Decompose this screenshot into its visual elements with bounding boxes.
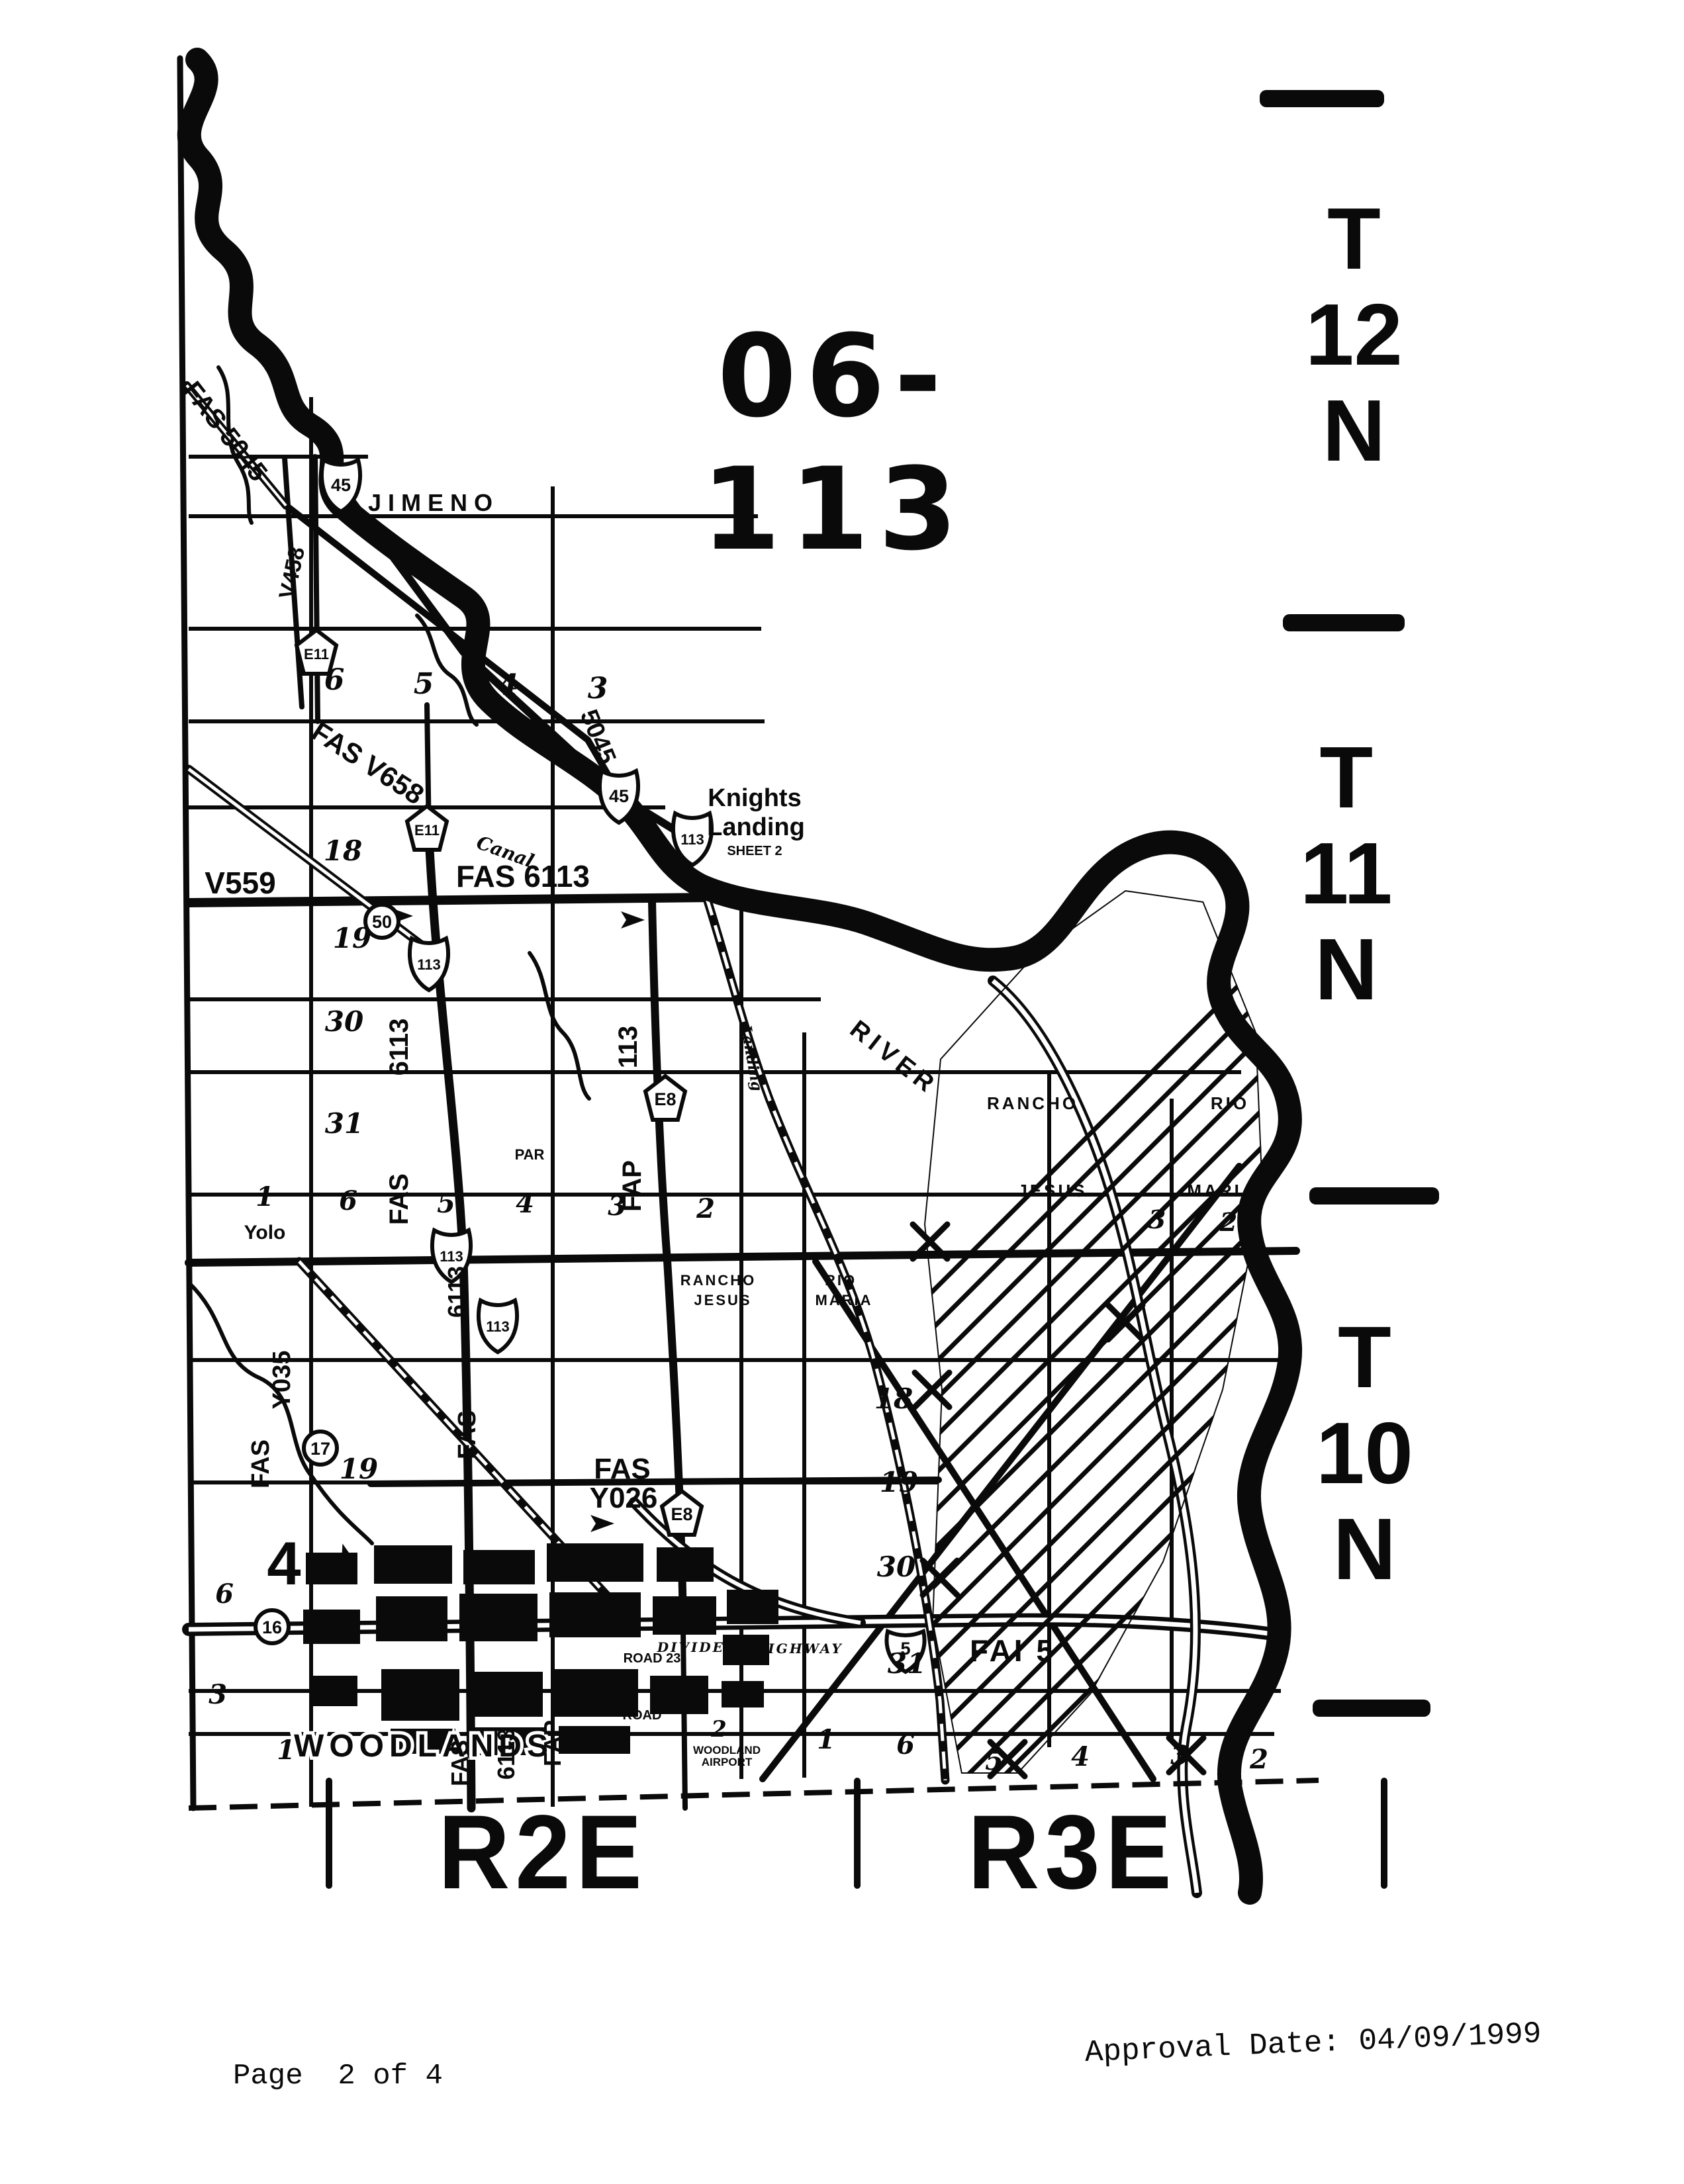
svg-text:113: 113 — [486, 1318, 510, 1335]
map-label: Yolo — [244, 1222, 286, 1244]
map-label: H6 — [755, 903, 770, 916]
map-label: FAS — [385, 1173, 414, 1225]
svg-text:E11: E11 — [414, 822, 440, 839]
map-label: 5 — [437, 1188, 455, 1219]
map-label: AIRPORT — [702, 1756, 753, 1768]
township-label-t11n: T 11 N — [1300, 729, 1393, 1018]
map-label: Landing — [707, 813, 805, 841]
svg-text:E8: E8 — [671, 1504, 692, 1524]
range-label-r2e: R2E — [438, 1792, 647, 1913]
map-label: MARIA — [1187, 1181, 1256, 1201]
township-label-t12n: T 12 N — [1305, 191, 1403, 479]
map-label: 18 — [874, 1383, 913, 1415]
map-label: 2 — [1249, 1744, 1268, 1775]
map-label: 6 — [324, 663, 345, 697]
map-label: FAP — [618, 1160, 647, 1212]
map-label: V559 — [205, 866, 275, 900]
svg-text:113: 113 — [440, 1248, 463, 1265]
township-label-t10n: T 10 N — [1316, 1309, 1413, 1598]
route-shield-113: 113 — [479, 1300, 517, 1352]
map-label: FAP — [539, 1720, 566, 1766]
map-label: 4 — [516, 1188, 534, 1219]
map-label: 2 — [1219, 1207, 1237, 1237]
map-label: 1 — [256, 1181, 274, 1212]
range-label-r3e: R3E — [968, 1792, 1177, 1913]
svg-text:113: 113 — [417, 956, 441, 973]
route-shield-E8: E8 — [662, 1491, 702, 1535]
map-label: ROAD — [623, 1708, 662, 1723]
map-label: 3 — [1148, 1205, 1166, 1234]
map-label: JIMENO — [368, 489, 499, 516]
map-label: FAS 5045 — [177, 376, 273, 486]
map-label: DIVIDED — [657, 1639, 739, 1655]
map-label: 6 — [215, 1578, 234, 1610]
svg-text:E11: E11 — [304, 646, 329, 662]
map-label: 31 — [888, 1647, 926, 1680]
map-label: PAR — [515, 1146, 545, 1163]
map-label: 5 — [985, 1745, 1004, 1776]
map-label: 3 — [1170, 1740, 1189, 1771]
route-shield-E11: E11 — [407, 806, 447, 850]
map-label: 19 — [340, 1453, 378, 1485]
map-label: 6113 — [492, 1728, 520, 1780]
map-label: 2 — [710, 1716, 727, 1743]
svg-text:50: 50 — [372, 912, 392, 932]
map-label: 6113 — [385, 1019, 414, 1076]
map-label: Y035 — [268, 1351, 296, 1410]
map-label: 4 — [1071, 1741, 1090, 1772]
map-label: 4 — [267, 1530, 301, 1598]
map-label: 30 — [325, 1005, 363, 1038]
map-label: 6113 — [443, 1266, 470, 1318]
map-label: MARIA — [815, 1292, 872, 1308]
map-label: 6 — [339, 1185, 357, 1216]
map-label: FAS — [247, 1439, 275, 1488]
map-label: 18 — [324, 835, 362, 867]
page-number: Page 2 of 4 — [233, 2060, 443, 2093]
map-label: JESUS — [694, 1292, 751, 1308]
map-label: RIVER — [845, 1015, 943, 1101]
map-label: V458 — [274, 545, 310, 602]
map-label: WOODLAND — [693, 1744, 761, 1756]
map-label: Knights — [708, 784, 801, 812]
scanned-map-page: 06-113 45451131131131131617505E11E11E8E8… — [0, 0, 1684, 2184]
map-label: 30 — [877, 1551, 915, 1583]
map-label: 19 — [880, 1466, 918, 1498]
map-label: 31 — [325, 1107, 363, 1140]
map-label: 1 — [817, 1724, 835, 1755]
route-shield-17: 17 — [304, 1432, 337, 1465]
map-label: FAS V658 — [306, 715, 430, 811]
map-label: FAS — [453, 1410, 481, 1459]
svg-text:45: 45 — [609, 786, 629, 806]
map-label: 19 — [333, 922, 371, 954]
svg-text:16: 16 — [262, 1617, 282, 1637]
map-label: 1 — [277, 1735, 295, 1766]
map-label: FAI 5 — [970, 1633, 1056, 1668]
map-label: HIGHWAY — [753, 1641, 843, 1657]
map-label: Y026 — [590, 1482, 658, 1514]
svg-text:17: 17 — [310, 1439, 330, 1459]
svg-text:113: 113 — [680, 831, 704, 848]
map-label: 4 — [498, 668, 519, 702]
map-label: RIO — [1211, 1093, 1249, 1113]
map-label: SHEET 2 — [727, 844, 782, 858]
map-label: FAS — [446, 1740, 473, 1786]
map-label: RIO — [825, 1272, 857, 1289]
map-label: RANCHO — [680, 1272, 757, 1289]
map-label: FAS — [594, 1453, 651, 1485]
svg-text:E8: E8 — [654, 1089, 676, 1109]
map-canvas: 45451131131131131617505E11E11E8E8JIMENOK… — [0, 0, 1684, 2184]
map-label: 3 — [588, 672, 608, 705]
route-shield-16: 16 — [256, 1610, 289, 1643]
map-label: 113 — [614, 1026, 643, 1069]
route-shield-E8: E8 — [645, 1076, 685, 1120]
svg-text:45: 45 — [331, 475, 351, 495]
map-label: JESUS — [1017, 1181, 1087, 1201]
map-label: RANCHO — [987, 1093, 1078, 1113]
map-label: 2 — [696, 1193, 715, 1224]
map-label: 6 — [896, 1729, 915, 1760]
map-label: 5 — [414, 667, 434, 701]
map-label: 3 — [209, 1679, 227, 1710]
